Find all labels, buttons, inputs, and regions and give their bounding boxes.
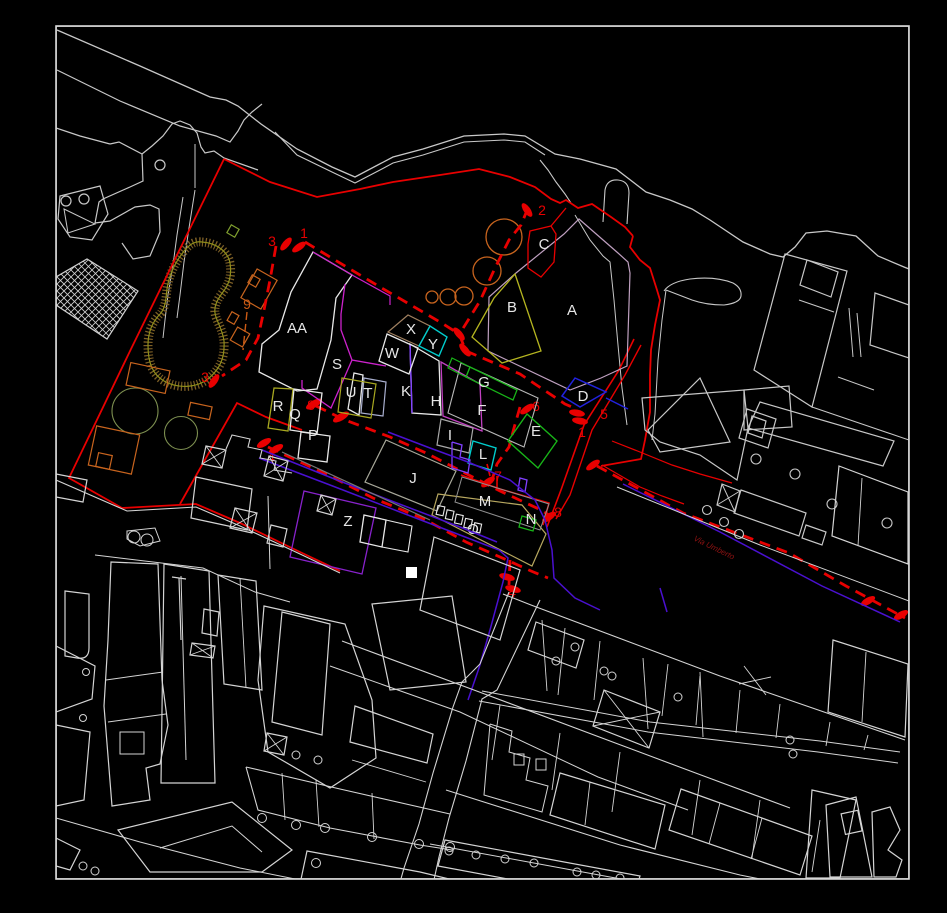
svg-text:Z: Z — [343, 513, 352, 530]
svg-text:W: W — [385, 345, 400, 362]
svg-text:8: 8 — [307, 397, 315, 413]
svg-text:5: 5 — [600, 406, 608, 422]
svg-text:8: 8 — [554, 504, 562, 520]
svg-text:Q: Q — [289, 406, 301, 423]
svg-text:M: M — [479, 493, 492, 510]
svg-text:D: D — [578, 388, 589, 405]
svg-text:E: E — [531, 423, 541, 440]
svg-text:A: A — [567, 302, 577, 319]
svg-text:3: 3 — [268, 233, 276, 249]
svg-text:X: X — [406, 321, 416, 338]
svg-text:O: O — [467, 521, 479, 538]
svg-text:T: T — [363, 385, 372, 402]
svg-text:J: J — [409, 470, 417, 487]
svg-text:L: L — [479, 446, 487, 463]
svg-text:2: 2 — [538, 202, 546, 218]
svg-text:9: 9 — [243, 296, 251, 312]
svg-text:AA: AA — [287, 320, 307, 337]
svg-text:U: U — [346, 384, 357, 401]
svg-text:I: I — [448, 427, 452, 444]
svg-text:S: S — [332, 356, 342, 373]
svg-text:K: K — [401, 383, 411, 400]
svg-text:1: 1 — [300, 225, 308, 241]
svg-text:C: C — [539, 236, 550, 253]
svg-text:F: F — [477, 402, 486, 419]
svg-text:B: B — [507, 299, 517, 316]
svg-text:Y: Y — [428, 336, 438, 353]
svg-text:3: 3 — [201, 369, 209, 385]
svg-text:1: 1 — [578, 424, 586, 440]
svg-text:R: R — [273, 398, 284, 415]
svg-text:G: G — [478, 374, 490, 391]
svg-text:N: N — [526, 511, 537, 528]
svg-text:P: P — [308, 427, 318, 444]
svg-text:H: H — [431, 393, 442, 410]
